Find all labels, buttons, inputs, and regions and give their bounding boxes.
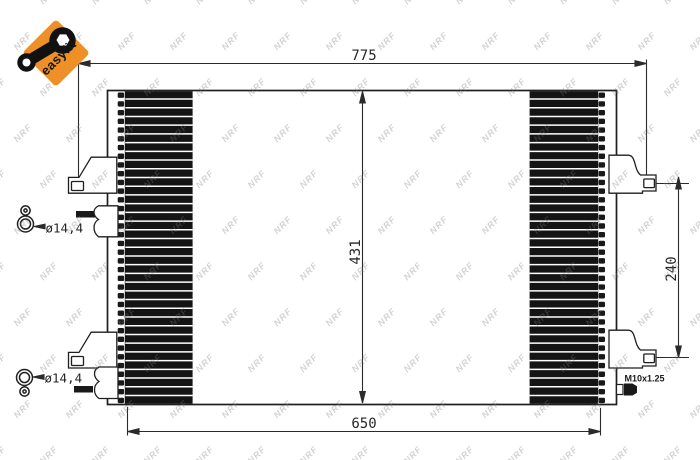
dim-label-431: 431 [348,239,364,264]
thread-fitting-icon [617,384,638,396]
label-upper-port-diameter: ø14,4 [46,221,84,236]
tube-ends-left [118,93,124,404]
arrowhead [360,392,366,404]
label-thread-size: M10x1.25 [625,374,665,384]
arrowhead [128,429,140,435]
bracket-bottom-left [69,332,117,368]
core-left [125,91,193,403]
arrowhead [589,429,601,435]
easyfit-logo: easyfit [6,4,98,96]
flange-icon-upper [18,206,34,232]
bracket-bottom-right [609,330,656,368]
bracket-top-right [609,155,656,193]
dim-label-650: 650 [351,416,376,432]
core-right [530,91,599,403]
arrowhead [33,375,44,380]
label-lower-port-diameter: ø14,4 [45,371,83,386]
leader-lower-port [33,375,44,380]
arrowhead [34,224,45,229]
flange-icon-lower [17,370,33,397]
arrowhead [676,346,682,358]
dim-label-240: 240 [664,256,680,281]
leader-upper-port [34,224,45,229]
bracket-top-left [69,157,117,193]
wrench-icon [6,4,98,96]
condenser-technical-drawing: 775 431 240 650 ø14,4 ø14,4 M10x1.25 [0,0,700,460]
arrowhead [676,177,682,189]
arrowhead [360,92,366,104]
dim-label-775: 775 [351,48,376,64]
arrowhead [635,61,647,67]
technical-drawing-page: 775 431 240 650 ø14,4 ø14,4 M10x1.25 NRF… [0,0,700,460]
tube-ends-right [599,93,605,404]
